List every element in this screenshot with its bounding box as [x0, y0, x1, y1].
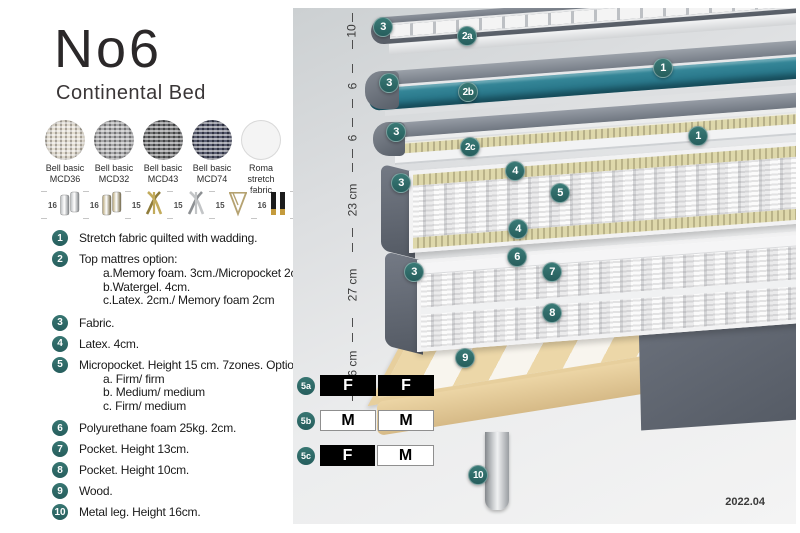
ruler-label-text: 27 cm — [345, 269, 359, 302]
feature-text-wrap: Pocket. Height 10cm. — [79, 463, 189, 478]
ruler-label-text: 23 cm — [345, 184, 359, 217]
feature-item: 3Fabric. — [52, 316, 298, 331]
fabric-swatch-label: Bell basicMCD43 — [142, 163, 184, 185]
leg-height-label: 15 — [132, 201, 141, 210]
feature-option: c.Latex. 2cm./ Memory foam 2cm — [103, 294, 306, 308]
feature-number: 2 — [52, 251, 68, 267]
leg-separator — [83, 191, 89, 219]
diagram-badge-2a: 2a — [457, 26, 477, 46]
leg-option: 15 — [174, 189, 208, 222]
product-sheet: No6 Continental Bed Bell basicMCD36Bell … — [0, 0, 800, 533]
fabric-swatches: Bell basicMCD36Bell basicMCD32Bell basic… — [44, 120, 288, 195]
leg-height-label: 16 — [258, 201, 267, 210]
leg-icon-twist-gold — [142, 189, 166, 222]
info-panel: No6 Continental Bed Bell basicMCD36Bell … — [0, 0, 293, 533]
fabric-code: MCD32 — [93, 174, 135, 185]
metal-leg-front — [485, 432, 509, 510]
leg-option: 15 — [216, 189, 250, 222]
feature-text: Fabric. — [79, 316, 114, 330]
feature-text: Micropocket. Height 15 cm. 7zones. Optio… — [79, 358, 303, 372]
ruler-segment: 6 — [341, 64, 363, 108]
feature-item: 4Latex. 4cm. — [52, 337, 298, 352]
feature-item: 9Wood. — [52, 484, 298, 499]
feature-number: 4 — [52, 336, 68, 352]
diagram-badge-8: 8 — [542, 303, 562, 323]
ruler-tick — [352, 149, 353, 158]
feature-text: Pocket. Height 13cm. — [79, 442, 189, 456]
diagram-badge-3: 3 — [391, 173, 411, 193]
ruler-tick — [352, 64, 353, 73]
feature-text: Pocket. Height 10cm. — [79, 463, 189, 477]
product-title: No6 — [54, 18, 162, 80]
ruler-tick — [352, 163, 353, 172]
fabric-name: Bell basic — [142, 163, 184, 174]
leg-option: 16 — [258, 189, 290, 222]
diagram-badge-5: 5 — [550, 183, 570, 203]
feature-text: Latex. 4cm. — [79, 337, 139, 351]
comfort-bar: MM — [320, 410, 434, 431]
feature-item: 1Stretch fabric quilted with wadding. — [52, 231, 298, 246]
ruler-label: 23 cm — [341, 172, 363, 228]
leg-separator — [251, 191, 257, 219]
feature-option: a. Firm/ firm — [103, 373, 303, 387]
leg-separator — [125, 191, 131, 219]
fabric-name: Bell basic — [191, 163, 233, 174]
ruler-label-text: 6 — [345, 83, 359, 90]
feature-options: a.Memory foam. 3cm./Micropocket 2cmb.Wat… — [103, 267, 306, 308]
feature-number: 7 — [52, 441, 68, 457]
leg-separator — [209, 191, 215, 219]
feature-number: 1 — [52, 230, 68, 246]
feature-item: 10Metal leg. Height 16cm. — [52, 505, 298, 520]
diagram-badge-1: 1 — [688, 126, 708, 146]
feature-text: Polyurethane foam 25kg. 2cm. — [79, 421, 236, 435]
fabric-swatch: Bell basicMCD43 — [142, 120, 184, 195]
feature-item: 6Polyurethane foam 25kg. 2cm. — [52, 421, 298, 436]
feature-number: 8 — [52, 462, 68, 478]
leg-option: 15 — [132, 189, 166, 222]
feature-text: Metal leg. Height 16cm. — [79, 505, 200, 519]
ruler-tick — [352, 228, 353, 237]
leg-height-label: 16 — [48, 201, 57, 210]
fabric-swatch: Romastretch fabric — [240, 120, 282, 195]
leg-icon-hairpin-gold — [226, 189, 250, 222]
comfort-cell: M — [377, 445, 434, 466]
ruler-tick — [352, 13, 353, 22]
comfort-bar: FM — [320, 445, 434, 466]
feature-option: a.Memory foam. 3cm./Micropocket 2cm — [103, 267, 306, 281]
fabric-code: MCD74 — [191, 174, 233, 185]
ruler-tick — [352, 118, 353, 127]
feature-options: a. Firm/ firmb. Medium/ mediumc. Firm/ m… — [103, 373, 303, 414]
comfort-cell: F — [320, 445, 375, 466]
product-subtitle: Continental Bed — [56, 82, 206, 105]
leg-options: 161615151516 — [40, 186, 290, 224]
ruler-segment: 6 — [341, 118, 363, 158]
ruler-tick — [352, 243, 353, 252]
feature-number: 10 — [52, 504, 68, 520]
comfort-row-label: 5c — [297, 447, 315, 465]
feature-option: b.Watergel. 4cm. — [103, 281, 306, 295]
ruler-tick — [352, 99, 353, 108]
feature-list: 1Stretch fabric quilted with wadding.2To… — [52, 231, 298, 526]
comfort-row-5b: 5bMM — [297, 410, 434, 431]
fabric-swatch-circle — [143, 120, 183, 160]
ruler-label-text: 10 — [345, 24, 359, 37]
feature-text-wrap: Micropocket. Height 15 cm. 7zones. Optio… — [79, 358, 303, 416]
fabric-name: Bell basic — [44, 163, 86, 174]
exploded-diagram-panel: 106623 cm27 cm16 cm — [293, 8, 796, 524]
ruler-segment: 23 cm — [341, 163, 363, 237]
leg-icon-twist-silver — [184, 189, 208, 222]
feature-text-wrap: Polyurethane foam 25kg. 2cm. — [79, 421, 236, 436]
feature-item: 5Micropocket. Height 15 cm. 7zones. Opti… — [52, 358, 298, 416]
comfort-cell: M — [320, 410, 376, 431]
ruler-tick — [352, 40, 353, 49]
leg-height-label: 16 — [90, 201, 99, 210]
comfort-row-label: 5b — [297, 412, 315, 430]
feature-item: 8Pocket. Height 10cm. — [52, 463, 298, 478]
feature-number: 3 — [52, 315, 68, 331]
feature-text-wrap: Pocket. Height 13cm. — [79, 442, 189, 457]
leg-option: 16 — [48, 189, 82, 222]
feature-text: Stretch fabric quilted with wadding. — [79, 231, 257, 245]
feature-item: 7Pocket. Height 13cm. — [52, 442, 298, 457]
fabric-swatch: Bell basicMCD74 — [191, 120, 233, 195]
fabric-swatch: Bell basicMCD32 — [93, 120, 135, 195]
diagram-badge-1: 1 — [653, 58, 673, 78]
feature-text: Top mattres option: — [79, 252, 306, 266]
feature-text-wrap: Fabric. — [79, 316, 114, 331]
ruler-label: 27 cm — [341, 252, 363, 318]
comfort-row-5a: 5aFF — [297, 375, 434, 396]
feature-text-wrap: Stretch fabric quilted with wadding. — [79, 231, 257, 246]
ruler-label: 6 — [341, 73, 363, 99]
diagram-badge-2b: 2b — [458, 82, 478, 102]
diagram-badge-3: 3 — [373, 17, 393, 37]
leg-icon-black-gold — [267, 189, 289, 222]
feature-option: c. Firm/ medium — [103, 400, 303, 414]
comfort-table: 5aFF5bMM5cFM — [297, 375, 434, 466]
fabric-swatch-label: Bell basicMCD74 — [191, 163, 233, 185]
ruler-segment: 27 cm — [341, 243, 363, 327]
diagram-badge-6: 6 — [507, 247, 527, 267]
feature-number: 5 — [52, 357, 68, 373]
comfort-row-label: 5a — [297, 377, 315, 395]
diagram-badge-2c: 2c — [460, 137, 480, 157]
comfort-cell: F — [320, 375, 376, 396]
fabric-name: Roma — [240, 163, 282, 174]
leg-separator — [41, 191, 47, 219]
diagram-badge-3: 3 — [379, 73, 399, 93]
comfort-bar: FF — [320, 375, 434, 396]
leg-height-label: 15 — [216, 201, 225, 210]
feature-option: b. Medium/ medium — [103, 386, 303, 400]
fabric-code: MCD43 — [142, 174, 184, 185]
diagram-badge-4: 4 — [508, 219, 528, 239]
feature-text-wrap: Latex. 4cm. — [79, 337, 139, 352]
leg-icon-cylinder-silver — [58, 189, 82, 222]
fabric-swatch-circle — [94, 120, 134, 160]
leg-option: 16 — [90, 189, 124, 222]
feature-text-wrap: Top mattres option:a.Memory foam. 3cm./M… — [79, 252, 306, 310]
fabric-swatch-circle — [241, 120, 281, 160]
fabric-swatch-label: Bell basicMCD32 — [93, 163, 135, 185]
ruler-label-text: 6 — [345, 135, 359, 142]
version-label: 2022.04 — [725, 496, 765, 508]
ruler-tick — [352, 318, 353, 327]
diagram-badge-9: 9 — [455, 348, 475, 368]
fabric-swatch-label: Bell basicMCD36 — [44, 163, 86, 185]
ruler-label: 10 — [341, 22, 363, 40]
ruler-segment: 10 — [341, 13, 363, 49]
diagram-badge-7: 7 — [542, 262, 562, 282]
comfort-cell: F — [378, 375, 434, 396]
feature-text: Wood. — [79, 484, 112, 498]
feature-item: 2Top mattres option:a.Memory foam. 3cm./… — [52, 252, 298, 310]
comfort-row-5c: 5cFM — [297, 445, 434, 466]
feature-text-wrap: Metal leg. Height 16cm. — [79, 505, 200, 520]
leg-separator — [167, 191, 173, 219]
ruler-label: 6 — [341, 127, 363, 149]
diagram-badge-3: 3 — [386, 122, 406, 142]
leg-height-label: 15 — [174, 201, 183, 210]
fabric-name: Bell basic — [93, 163, 135, 174]
diagram-badge-10: 10 — [468, 465, 488, 485]
leg-icon-cylinder-brass — [100, 189, 124, 222]
fabric-swatch: Bell basicMCD36 — [44, 120, 86, 195]
ruler-tick — [352, 333, 353, 342]
diagram-badge-4: 4 — [505, 161, 525, 181]
fabric-code: MCD36 — [44, 174, 86, 185]
feature-number: 6 — [52, 420, 68, 436]
feature-number: 9 — [52, 483, 68, 499]
fabric-swatch-circle — [45, 120, 85, 160]
feature-text-wrap: Wood. — [79, 484, 112, 499]
fabric-swatch-circle — [192, 120, 232, 160]
comfort-cell: M — [378, 410, 434, 431]
diagram-badge-3: 3 — [404, 262, 424, 282]
